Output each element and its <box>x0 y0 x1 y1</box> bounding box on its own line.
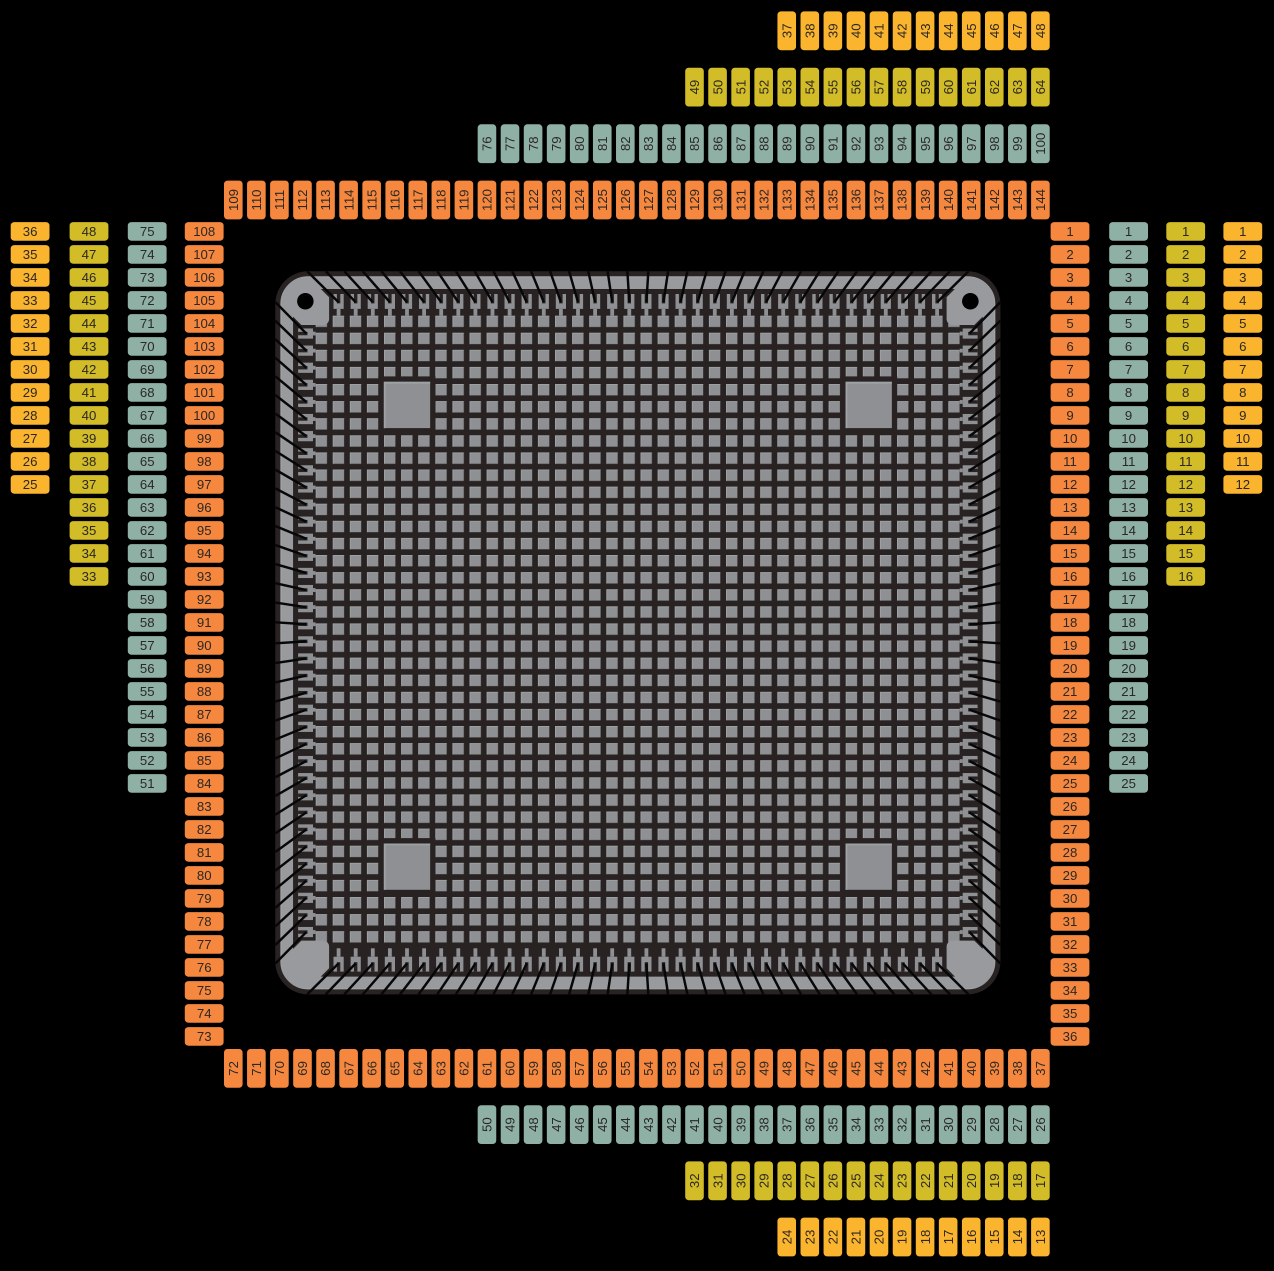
svg-text:44: 44 <box>872 1061 887 1076</box>
svg-text:22: 22 <box>1121 707 1136 722</box>
svg-text:30: 30 <box>733 1173 748 1188</box>
svg-text:103: 103 <box>193 339 215 354</box>
svg-text:33: 33 <box>1063 960 1078 975</box>
svg-text:7: 7 <box>1066 362 1073 377</box>
svg-text:28: 28 <box>1063 845 1078 860</box>
svg-text:42: 42 <box>918 1061 933 1076</box>
svg-text:12: 12 <box>1235 477 1250 492</box>
svg-text:105: 105 <box>193 293 215 308</box>
svg-text:36: 36 <box>82 500 97 515</box>
svg-text:4: 4 <box>1066 293 1073 308</box>
svg-text:30: 30 <box>941 1117 956 1132</box>
svg-text:63: 63 <box>140 500 155 515</box>
svg-text:18: 18 <box>918 1230 933 1245</box>
svg-text:86: 86 <box>197 730 212 745</box>
svg-text:82: 82 <box>618 136 633 151</box>
svg-text:60: 60 <box>503 1061 518 1076</box>
svg-text:26: 26 <box>1033 1117 1048 1132</box>
svg-text:93: 93 <box>197 569 212 584</box>
svg-text:18: 18 <box>1121 615 1136 630</box>
svg-text:33: 33 <box>872 1117 887 1132</box>
svg-text:40: 40 <box>82 408 97 423</box>
svg-text:70: 70 <box>272 1061 287 1076</box>
svg-text:102: 102 <box>193 362 215 377</box>
svg-text:51: 51 <box>710 1061 725 1076</box>
svg-text:6: 6 <box>1239 339 1246 354</box>
svg-text:47: 47 <box>803 1061 818 1076</box>
svg-text:34: 34 <box>23 270 38 285</box>
svg-text:90: 90 <box>803 136 818 151</box>
svg-text:45: 45 <box>82 293 97 308</box>
svg-text:69: 69 <box>140 362 155 377</box>
svg-text:52: 52 <box>756 80 771 95</box>
svg-text:90: 90 <box>197 638 212 653</box>
svg-text:42: 42 <box>664 1117 679 1132</box>
svg-text:1: 1 <box>1125 224 1132 239</box>
svg-text:55: 55 <box>618 1061 633 1076</box>
svg-text:107: 107 <box>193 247 215 262</box>
svg-text:53: 53 <box>664 1061 679 1076</box>
svg-text:6: 6 <box>1066 339 1073 354</box>
svg-text:76: 76 <box>197 960 212 975</box>
svg-text:8: 8 <box>1182 385 1189 400</box>
svg-text:108: 108 <box>193 224 215 239</box>
svg-text:24: 24 <box>872 1173 887 1188</box>
svg-text:93: 93 <box>872 136 887 151</box>
svg-text:54: 54 <box>641 1061 656 1076</box>
svg-text:89: 89 <box>779 136 794 151</box>
svg-text:45: 45 <box>849 1061 864 1076</box>
svg-text:104: 104 <box>193 316 215 331</box>
svg-text:21: 21 <box>941 1173 956 1188</box>
svg-text:3: 3 <box>1066 270 1073 285</box>
svg-text:12: 12 <box>1121 477 1136 492</box>
svg-text:30: 30 <box>23 362 38 377</box>
svg-text:3: 3 <box>1125 270 1132 285</box>
svg-text:41: 41 <box>687 1117 702 1132</box>
svg-text:75: 75 <box>197 983 212 998</box>
svg-text:72: 72 <box>226 1061 241 1076</box>
svg-text:41: 41 <box>941 1061 956 1076</box>
svg-text:40: 40 <box>710 1117 725 1132</box>
svg-text:80: 80 <box>572 136 587 151</box>
svg-text:31: 31 <box>23 339 38 354</box>
svg-text:81: 81 <box>197 845 212 860</box>
svg-text:46: 46 <box>987 23 1002 38</box>
svg-text:95: 95 <box>197 523 212 538</box>
svg-text:39: 39 <box>733 1117 748 1132</box>
svg-text:96: 96 <box>941 136 956 151</box>
svg-text:39: 39 <box>826 23 841 38</box>
svg-text:70: 70 <box>140 339 155 354</box>
svg-text:84: 84 <box>664 136 679 151</box>
svg-text:31: 31 <box>1063 914 1078 929</box>
svg-text:38: 38 <box>82 454 97 469</box>
svg-text:17: 17 <box>1033 1173 1048 1188</box>
svg-text:16: 16 <box>1063 569 1078 584</box>
svg-text:94: 94 <box>197 546 212 561</box>
svg-text:13: 13 <box>1033 1230 1048 1245</box>
svg-text:16: 16 <box>1121 569 1136 584</box>
svg-text:35: 35 <box>23 247 38 262</box>
svg-text:98: 98 <box>987 136 1002 151</box>
svg-text:80: 80 <box>197 868 212 883</box>
svg-text:126: 126 <box>618 189 633 211</box>
svg-text:19: 19 <box>895 1230 910 1245</box>
svg-text:25: 25 <box>1063 776 1078 791</box>
svg-text:52: 52 <box>687 1061 702 1076</box>
svg-text:131: 131 <box>733 189 748 211</box>
svg-text:56: 56 <box>595 1061 610 1076</box>
svg-text:97: 97 <box>197 477 212 492</box>
svg-text:7: 7 <box>1182 362 1189 377</box>
svg-text:61: 61 <box>964 80 979 95</box>
svg-text:42: 42 <box>895 23 910 38</box>
svg-text:18: 18 <box>1010 1173 1025 1188</box>
svg-text:98: 98 <box>197 454 212 469</box>
svg-text:14: 14 <box>1121 523 1136 538</box>
svg-text:57: 57 <box>140 638 155 653</box>
svg-text:123: 123 <box>549 189 564 211</box>
svg-text:57: 57 <box>572 1061 587 1076</box>
svg-text:129: 129 <box>687 189 702 211</box>
svg-text:127: 127 <box>641 189 656 211</box>
svg-text:14: 14 <box>1063 523 1078 538</box>
svg-text:14: 14 <box>1010 1230 1025 1245</box>
svg-text:52: 52 <box>140 753 155 768</box>
svg-text:65: 65 <box>140 454 155 469</box>
svg-text:113: 113 <box>318 189 333 210</box>
svg-text:66: 66 <box>364 1061 379 1076</box>
svg-text:125: 125 <box>595 189 610 211</box>
svg-text:46: 46 <box>572 1117 587 1132</box>
svg-text:28: 28 <box>779 1173 794 1188</box>
svg-text:47: 47 <box>82 247 97 262</box>
svg-text:115: 115 <box>364 189 379 210</box>
svg-text:91: 91 <box>826 136 841 151</box>
svg-text:106: 106 <box>193 270 215 285</box>
svg-text:58: 58 <box>895 80 910 95</box>
svg-text:19: 19 <box>1063 638 1078 653</box>
svg-text:11: 11 <box>1179 454 1193 469</box>
svg-text:16: 16 <box>964 1230 979 1245</box>
svg-text:10: 10 <box>1063 431 1078 446</box>
svg-text:47: 47 <box>1010 23 1025 38</box>
svg-text:135: 135 <box>826 189 841 211</box>
svg-text:8: 8 <box>1125 385 1132 400</box>
svg-text:143: 143 <box>1010 189 1025 211</box>
svg-text:39: 39 <box>987 1061 1002 1076</box>
svg-text:121: 121 <box>503 189 518 211</box>
svg-text:67: 67 <box>140 408 155 423</box>
svg-text:17: 17 <box>1063 592 1078 607</box>
svg-text:1: 1 <box>1239 224 1246 239</box>
svg-text:38: 38 <box>1010 1061 1025 1076</box>
svg-text:92: 92 <box>849 136 864 151</box>
svg-text:53: 53 <box>140 730 155 745</box>
svg-text:13: 13 <box>1178 500 1193 515</box>
svg-text:30: 30 <box>1063 891 1078 906</box>
svg-text:88: 88 <box>756 136 771 151</box>
svg-text:44: 44 <box>618 1117 633 1132</box>
svg-text:9: 9 <box>1066 408 1073 423</box>
svg-text:79: 79 <box>549 136 564 151</box>
svg-text:48: 48 <box>526 1117 541 1132</box>
svg-text:87: 87 <box>733 136 748 151</box>
svg-text:32: 32 <box>895 1117 910 1132</box>
svg-text:6: 6 <box>1125 339 1132 354</box>
svg-text:12: 12 <box>1063 477 1078 492</box>
svg-text:24: 24 <box>1063 753 1078 768</box>
svg-text:16: 16 <box>1178 569 1193 584</box>
svg-text:20: 20 <box>1121 661 1136 676</box>
svg-text:73: 73 <box>197 1029 212 1044</box>
svg-text:120: 120 <box>480 189 495 211</box>
svg-text:136: 136 <box>849 189 864 211</box>
svg-text:85: 85 <box>197 753 212 768</box>
svg-text:9: 9 <box>1182 408 1189 423</box>
svg-text:65: 65 <box>387 1061 402 1076</box>
svg-text:43: 43 <box>918 23 933 38</box>
svg-text:27: 27 <box>1063 822 1078 837</box>
svg-text:11: 11 <box>1236 454 1250 469</box>
svg-text:36: 36 <box>1063 1029 1078 1044</box>
svg-text:71: 71 <box>249 1061 264 1076</box>
svg-text:79: 79 <box>197 891 212 906</box>
svg-text:48: 48 <box>1033 23 1048 38</box>
svg-text:51: 51 <box>733 80 748 95</box>
svg-text:63: 63 <box>434 1061 449 1076</box>
svg-text:141: 141 <box>964 189 979 211</box>
svg-text:35: 35 <box>1063 1006 1078 1021</box>
svg-text:8: 8 <box>1239 385 1246 400</box>
svg-text:26: 26 <box>826 1173 841 1188</box>
svg-text:44: 44 <box>941 23 956 38</box>
svg-text:43: 43 <box>641 1117 656 1132</box>
svg-text:62: 62 <box>457 1061 472 1076</box>
svg-text:77: 77 <box>197 937 212 952</box>
svg-text:32: 32 <box>687 1173 702 1188</box>
svg-text:54: 54 <box>140 707 155 722</box>
svg-text:92: 92 <box>197 592 212 607</box>
svg-text:71: 71 <box>140 316 155 331</box>
svg-text:32: 32 <box>1063 937 1078 952</box>
svg-text:100: 100 <box>193 408 215 423</box>
svg-text:4: 4 <box>1125 293 1132 308</box>
svg-text:73: 73 <box>140 270 155 285</box>
svg-text:72: 72 <box>140 293 155 308</box>
svg-text:40: 40 <box>849 23 864 38</box>
svg-text:14: 14 <box>1178 523 1193 538</box>
svg-text:31: 31 <box>710 1173 725 1188</box>
svg-text:78: 78 <box>526 136 541 151</box>
svg-text:83: 83 <box>641 136 656 151</box>
svg-text:140: 140 <box>941 189 956 211</box>
svg-text:15: 15 <box>987 1230 1002 1245</box>
svg-text:41: 41 <box>872 23 887 38</box>
svg-text:35: 35 <box>82 523 97 538</box>
svg-text:46: 46 <box>826 1061 841 1076</box>
svg-text:59: 59 <box>918 80 933 95</box>
svg-text:2: 2 <box>1182 247 1189 262</box>
svg-text:122: 122 <box>526 189 541 211</box>
svg-text:134: 134 <box>803 189 818 211</box>
svg-text:23: 23 <box>895 1173 910 1188</box>
svg-text:74: 74 <box>197 1006 212 1021</box>
svg-text:55: 55 <box>140 684 155 699</box>
svg-text:137: 137 <box>872 189 887 211</box>
svg-text:99: 99 <box>1010 136 1025 151</box>
svg-text:43: 43 <box>82 339 97 354</box>
svg-text:23: 23 <box>1063 730 1078 745</box>
svg-text:33: 33 <box>82 569 97 584</box>
svg-text:101: 101 <box>193 385 215 400</box>
svg-text:100: 100 <box>1033 133 1048 155</box>
svg-text:18: 18 <box>1063 615 1078 630</box>
svg-text:24: 24 <box>779 1230 794 1245</box>
svg-text:24: 24 <box>1121 753 1136 768</box>
svg-text:51: 51 <box>140 776 155 791</box>
svg-text:128: 128 <box>664 189 679 211</box>
svg-text:1: 1 <box>1066 224 1073 239</box>
svg-text:83: 83 <box>197 799 212 814</box>
svg-text:39: 39 <box>82 431 97 446</box>
svg-text:63: 63 <box>1010 80 1025 95</box>
svg-text:124: 124 <box>572 189 587 211</box>
svg-text:60: 60 <box>941 80 956 95</box>
svg-text:4: 4 <box>1182 293 1189 308</box>
svg-text:62: 62 <box>140 523 155 538</box>
svg-text:35: 35 <box>826 1117 841 1132</box>
svg-text:12: 12 <box>1178 477 1193 492</box>
svg-text:33: 33 <box>23 293 38 308</box>
svg-text:97: 97 <box>964 136 979 151</box>
svg-text:5: 5 <box>1182 316 1189 331</box>
svg-text:68: 68 <box>318 1061 333 1076</box>
svg-text:111: 111 <box>272 190 287 210</box>
svg-text:19: 19 <box>987 1173 1002 1188</box>
svg-text:60: 60 <box>140 569 155 584</box>
svg-text:29: 29 <box>23 385 38 400</box>
svg-text:31: 31 <box>918 1117 933 1132</box>
svg-text:7: 7 <box>1239 362 1246 377</box>
svg-text:45: 45 <box>964 23 979 38</box>
svg-text:99: 99 <box>197 431 212 446</box>
svg-text:3: 3 <box>1182 270 1189 285</box>
svg-text:77: 77 <box>503 136 518 151</box>
svg-text:110: 110 <box>249 189 264 210</box>
svg-text:20: 20 <box>1063 661 1078 676</box>
svg-text:21: 21 <box>1121 684 1136 699</box>
svg-text:58: 58 <box>140 615 155 630</box>
svg-text:119: 119 <box>457 189 472 210</box>
svg-text:19: 19 <box>1121 638 1136 653</box>
svg-text:25: 25 <box>1121 776 1136 791</box>
svg-text:43: 43 <box>895 1061 910 1076</box>
svg-text:38: 38 <box>756 1117 771 1132</box>
svg-text:34: 34 <box>849 1117 864 1132</box>
svg-text:67: 67 <box>341 1061 356 1076</box>
svg-text:22: 22 <box>918 1173 933 1188</box>
svg-text:132: 132 <box>756 189 771 211</box>
svg-text:27: 27 <box>1010 1117 1025 1132</box>
svg-text:37: 37 <box>82 477 97 492</box>
svg-text:23: 23 <box>1121 730 1136 745</box>
svg-text:5: 5 <box>1066 316 1073 331</box>
svg-text:50: 50 <box>710 80 725 95</box>
svg-text:21: 21 <box>1063 684 1078 699</box>
svg-text:36: 36 <box>803 1117 818 1132</box>
svg-text:88: 88 <box>197 684 212 699</box>
svg-text:25: 25 <box>849 1173 864 1188</box>
svg-text:23: 23 <box>803 1230 818 1245</box>
svg-text:17: 17 <box>941 1230 956 1245</box>
svg-text:118: 118 <box>434 189 449 210</box>
svg-text:94: 94 <box>895 136 910 151</box>
svg-text:64: 64 <box>410 1061 425 1076</box>
svg-text:9: 9 <box>1239 408 1246 423</box>
svg-text:59: 59 <box>140 592 155 607</box>
svg-text:37: 37 <box>779 1117 794 1132</box>
svg-text:10: 10 <box>1178 431 1193 446</box>
svg-text:29: 29 <box>756 1173 771 1188</box>
svg-text:25: 25 <box>23 477 38 492</box>
svg-text:55: 55 <box>826 80 841 95</box>
svg-text:47: 47 <box>549 1117 564 1132</box>
svg-text:144: 144 <box>1033 189 1048 211</box>
svg-text:17: 17 <box>1121 592 1136 607</box>
svg-text:22: 22 <box>826 1230 841 1245</box>
svg-text:26: 26 <box>1063 799 1078 814</box>
svg-text:62: 62 <box>987 80 1002 95</box>
svg-text:28: 28 <box>987 1117 1002 1132</box>
svg-text:96: 96 <box>197 500 212 515</box>
svg-text:91: 91 <box>197 615 212 630</box>
svg-text:29: 29 <box>1063 868 1078 883</box>
svg-text:87: 87 <box>197 707 212 722</box>
svg-text:116: 116 <box>387 189 402 210</box>
svg-text:9: 9 <box>1125 408 1132 423</box>
svg-text:49: 49 <box>503 1117 518 1132</box>
svg-text:61: 61 <box>480 1061 495 1076</box>
svg-text:13: 13 <box>1121 500 1136 515</box>
svg-text:82: 82 <box>197 822 212 837</box>
svg-text:117: 117 <box>410 189 425 210</box>
svg-text:21: 21 <box>849 1230 864 1245</box>
svg-text:34: 34 <box>1063 983 1078 998</box>
svg-text:37: 37 <box>1033 1061 1048 1076</box>
svg-text:54: 54 <box>803 80 818 95</box>
svg-text:130: 130 <box>710 189 725 211</box>
svg-text:49: 49 <box>756 1061 771 1076</box>
svg-text:41: 41 <box>82 385 97 400</box>
svg-text:3: 3 <box>1239 270 1246 285</box>
svg-text:61: 61 <box>140 546 155 561</box>
svg-text:42: 42 <box>82 362 97 377</box>
svg-text:5: 5 <box>1125 316 1132 331</box>
svg-text:20: 20 <box>872 1230 887 1245</box>
svg-text:15: 15 <box>1121 546 1136 561</box>
svg-text:40: 40 <box>964 1061 979 1076</box>
svg-text:81: 81 <box>595 136 610 151</box>
svg-text:46: 46 <box>82 270 97 285</box>
svg-text:64: 64 <box>1033 80 1048 95</box>
svg-text:68: 68 <box>140 385 155 400</box>
svg-text:75: 75 <box>140 224 155 239</box>
svg-text:38: 38 <box>803 23 818 38</box>
svg-text:27: 27 <box>803 1173 818 1188</box>
svg-text:48: 48 <box>82 224 97 239</box>
